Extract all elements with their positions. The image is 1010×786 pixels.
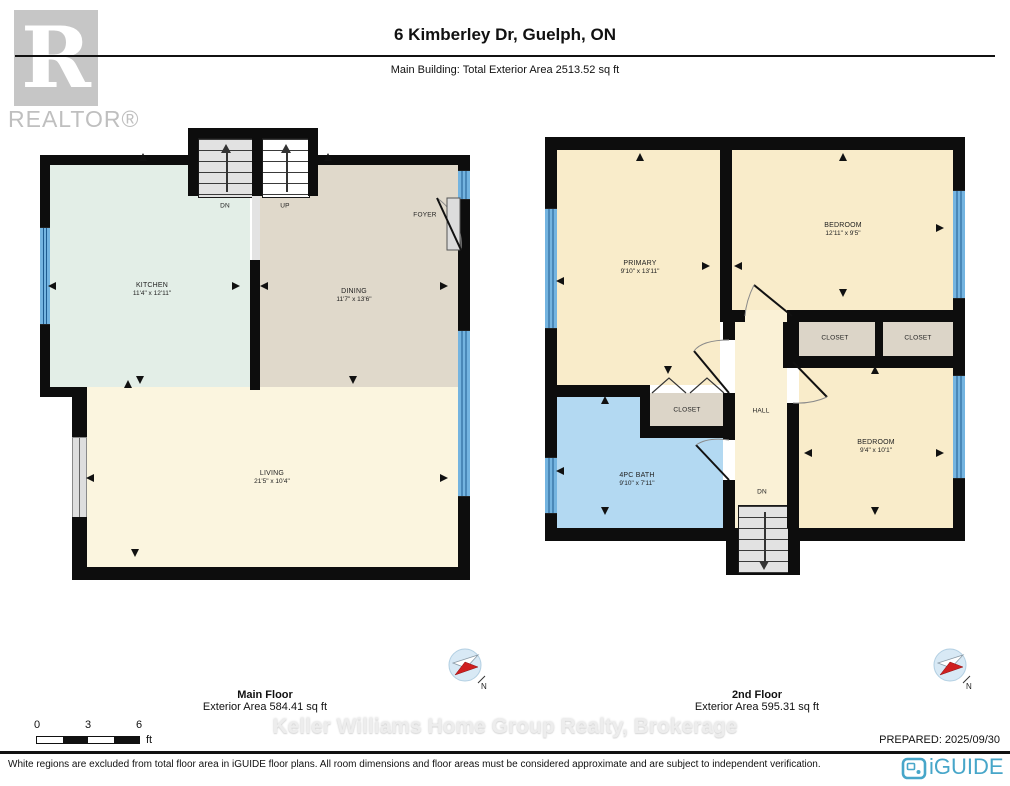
room-label-living: LIVING 21'5" x 10'4": [254, 469, 290, 487]
bath-door-leaf: [696, 445, 729, 480]
primary-door-arc: [694, 340, 729, 351]
dining-name: DINING: [336, 287, 371, 296]
scale-unit: ft: [146, 734, 152, 746]
floorplan-page: R REALTOR® 6 Kimberley Dr, Guelph, ON Ma…: [0, 0, 1010, 786]
room-label-foyer: FOYER: [413, 212, 436, 221]
room-label-dining: DINING 11'7" x 13'6": [336, 287, 371, 305]
dining-dims: 11'7" x 13'6": [336, 296, 371, 305]
compass-icon: N: [445, 645, 491, 691]
scale-tick-0: 0: [29, 719, 45, 731]
bedroom1-dims: 12'11" x 9'5": [824, 230, 862, 239]
room-label-kitchen: KITCHEN 11'4" x 12'11": [133, 281, 171, 299]
kitchen-name: KITCHEN: [133, 281, 171, 290]
disclaimer-text: White regions are excluded from total fl…: [8, 759, 821, 770]
scale-tick-6: 6: [131, 719, 147, 731]
living-name: LIVING: [254, 469, 290, 478]
second-floor-title: 2nd Floor Exterior Area 595.31 sq ft: [607, 689, 907, 713]
primary-dims: 9'10" x 13'11": [621, 268, 660, 277]
page-title: 6 Kimberley Dr, Guelph, ON: [0, 25, 1010, 45]
prepared-date: PREPARED: 2025/09/30: [879, 734, 1000, 746]
stairs-dn-label: DN: [220, 203, 230, 212]
bedroom1-door-leaf: [754, 285, 792, 316]
header-divider: [15, 55, 995, 57]
room-label-bath: 4PC BATH 9'10" x 7'11": [619, 471, 654, 489]
room-label-closet3: CLOSET: [673, 407, 700, 416]
bedroom2-door-leaf: [793, 362, 827, 397]
bedroom2-door-arc: [793, 397, 827, 403]
scale-tick-3: 3: [80, 719, 96, 731]
primary-door-leaf: [694, 351, 729, 393]
scale-segment: [63, 737, 89, 743]
bedroom2-name: BEDROOM: [857, 438, 895, 447]
page-subtitle: Main Building: Total Exterior Area 2513.…: [0, 64, 1010, 76]
living-dims: 21'5" x 10'4": [254, 478, 290, 487]
second-floor-name: 2nd Floor: [607, 689, 907, 701]
room-label-closet1: CLOSET: [821, 335, 848, 344]
compass-icon: N: [930, 645, 976, 691]
footer-divider: [0, 751, 1010, 754]
room-label-hall: HALL: [752, 408, 769, 417]
compass-n-label: N: [966, 682, 972, 691]
scale-bar: [36, 736, 140, 744]
main-floor-door-symbols: [40, 128, 470, 580]
compass-n-label: N: [481, 682, 487, 691]
kitchen-dims: 11'4" x 12'11": [133, 290, 171, 299]
room-label-primary: PRIMARY 9'10" x 13'11": [621, 259, 660, 277]
second-floor-door-symbols: [540, 135, 970, 580]
bedroom2-dims: 9'4" x 10'1": [857, 447, 895, 456]
main-floor-name: Main Floor: [115, 689, 415, 701]
scale-segment: [37, 737, 63, 743]
second-floor-area: Exterior Area 595.31 sq ft: [607, 701, 907, 713]
scale-segment: [114, 737, 140, 743]
stairs-up-label: UP: [280, 203, 289, 212]
bath-door-arc: [696, 439, 729, 445]
bedroom1-door-arc: [745, 285, 754, 316]
bedroom1-name: BEDROOM: [824, 221, 862, 230]
iguide-logo-text: iGUIDE: [929, 754, 1004, 780]
main-floor-area: Exterior Area 584.41 sq ft: [115, 701, 415, 713]
room-label-bedroom1: BEDROOM 12'11" x 9'5": [824, 221, 862, 239]
primary-name: PRIMARY: [621, 259, 660, 268]
main-floor-title: Main Floor Exterior Area 584.41 sq ft: [115, 689, 415, 713]
room-label-closet2: CLOSET: [904, 335, 931, 344]
scale-segment: [88, 737, 114, 743]
main-floor-plan: KITCHEN 11'4" x 12'11" DINING 11'7" x 13…: [40, 128, 470, 580]
bath-name: 4PC BATH: [619, 471, 654, 480]
second-floor-plan: PRIMARY 9'10" x 13'11" BEDROOM 12'11" x …: [540, 135, 970, 580]
closet-bifold-door: [652, 378, 686, 393]
bath-dims: 9'10" x 7'11": [619, 480, 654, 489]
stairs-dn-label: DN: [757, 489, 767, 498]
room-label-bedroom2: BEDROOM 9'4" x 10'1": [857, 438, 895, 456]
iguide-logo-icon: [901, 756, 928, 781]
